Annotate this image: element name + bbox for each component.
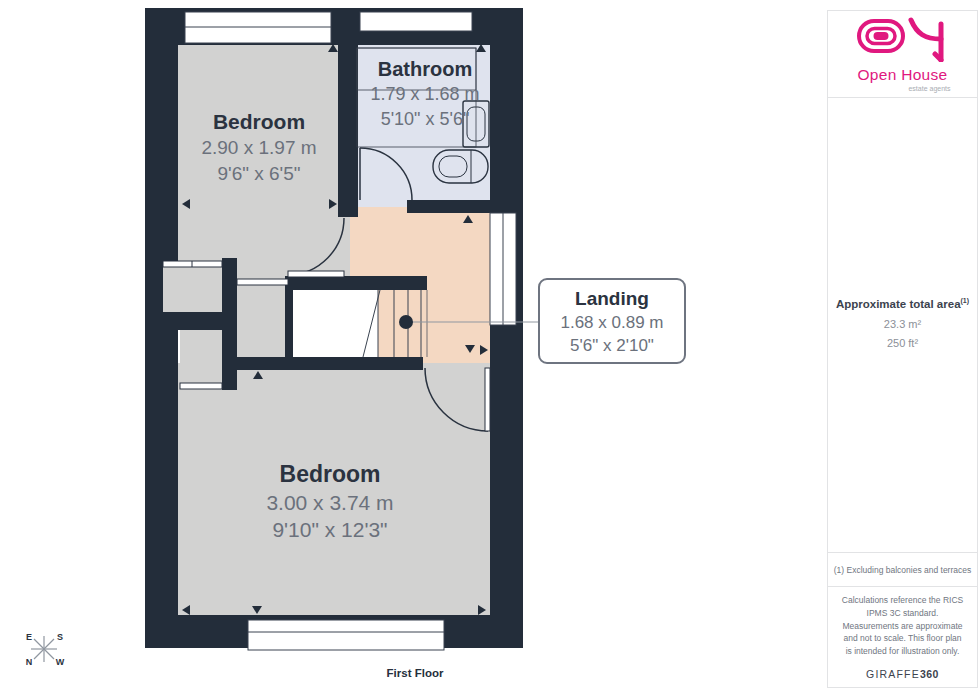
area-metric-value: 23.3 m² xyxy=(884,315,921,334)
room-imperial-dims: 5'6" x 2'10" xyxy=(540,334,684,357)
room-name: Landing xyxy=(540,286,684,311)
room-metric-dims: 2.90 x 1.97 m xyxy=(173,135,345,161)
area-label-text: Approximate total area xyxy=(836,297,961,309)
room-name: Bedroom xyxy=(244,460,416,489)
room-imperial-dims: 9'10" x 12'3" xyxy=(244,516,416,543)
toilet-bowl xyxy=(439,156,467,177)
stair-side-floor xyxy=(237,285,285,357)
info-sidebar: Open House estate agents Approximate tot… xyxy=(827,10,978,688)
wall-stairwell-west xyxy=(285,276,293,370)
total-area-section: Approximate total area(1) 23.3 m² 250 ft… xyxy=(828,98,977,553)
logo-tagline-text: estate agents xyxy=(851,85,955,92)
area-imperial-value: 250 ft² xyxy=(887,334,918,353)
closet2-door xyxy=(180,383,222,389)
leader-dot xyxy=(399,315,413,329)
compass-rose: E S N W xyxy=(26,632,65,667)
bedroom2-door-leaf xyxy=(485,368,490,431)
bedroom2-window xyxy=(248,620,444,650)
landing-banister xyxy=(237,279,288,285)
agency-logo-section: Open House estate agents xyxy=(828,11,977,98)
wall-bathroom-south xyxy=(407,200,523,213)
bathroom-label: Bathroom 1.79 x 1.68 m 5'10" x 5'6" xyxy=(339,56,511,132)
wall-left-lower xyxy=(145,312,178,648)
footnote-text: (1) Excluding balconies and terraces xyxy=(834,565,972,575)
floorplan-page: E S N W Bedroom 2.90 x 1.97 m 9'6" x 6'5… xyxy=(0,0,980,693)
bathroom-window xyxy=(360,12,472,31)
open-house-logo: Open House estate agents xyxy=(851,16,955,92)
bedroom1-label: Bedroom 2.90 x 1.97 m 9'6" x 6'5" xyxy=(173,108,345,187)
room-metric-dims: 1.68 x 0.89 m xyxy=(540,311,684,334)
wall-closet-column xyxy=(222,258,237,390)
closet1-floor xyxy=(163,267,222,312)
wall-stairwell-south xyxy=(233,357,423,370)
room-imperial-dims: 5'10" x 5'6" xyxy=(339,107,511,132)
compass-south: S xyxy=(57,632,63,642)
room-metric-dims: 3.00 x 3.74 m xyxy=(244,489,416,516)
landing-floor-stairs xyxy=(378,290,490,363)
compass-north: N xyxy=(26,657,33,667)
compass-west: W xyxy=(56,657,65,667)
compass-east: E xyxy=(26,632,32,642)
room-imperial-dims: 9'6" x 6'5" xyxy=(173,161,345,187)
room-name: Bedroom xyxy=(173,108,345,135)
logo-brand-text: Open House xyxy=(851,67,955,83)
disclaimer-text: Calculations reference the RICS IPMS 3C … xyxy=(841,594,964,658)
area-footnote-marker: (1) xyxy=(961,297,970,304)
giraffe360-watermark: GIRAFFE360 xyxy=(866,668,939,680)
landing-callout: Landing 1.68 x 0.89 m 5'6" x 2'10" xyxy=(538,278,686,364)
disclaimer-section: Calculations reference the RICS IPMS 3C … xyxy=(828,587,977,687)
bedroom1-door-leaf xyxy=(288,271,344,277)
footnote-section: (1) Excluding balconies and terraces xyxy=(828,553,977,587)
room-metric-dims: 1.79 x 1.68 m xyxy=(339,82,511,107)
open-house-logo-icon xyxy=(851,16,955,62)
floor-title: First Floor xyxy=(330,667,500,679)
bedroom2-label: Bedroom 3.00 x 3.74 m 9'10" x 12'3" xyxy=(244,460,416,543)
giraffe-360-text: 360 xyxy=(920,668,939,680)
area-label: Approximate total area(1) xyxy=(836,297,969,310)
wall-stairwell-north xyxy=(288,276,427,290)
giraffe-text: GIRAFFE xyxy=(866,668,920,680)
room-name: Bathroom xyxy=(339,56,511,82)
